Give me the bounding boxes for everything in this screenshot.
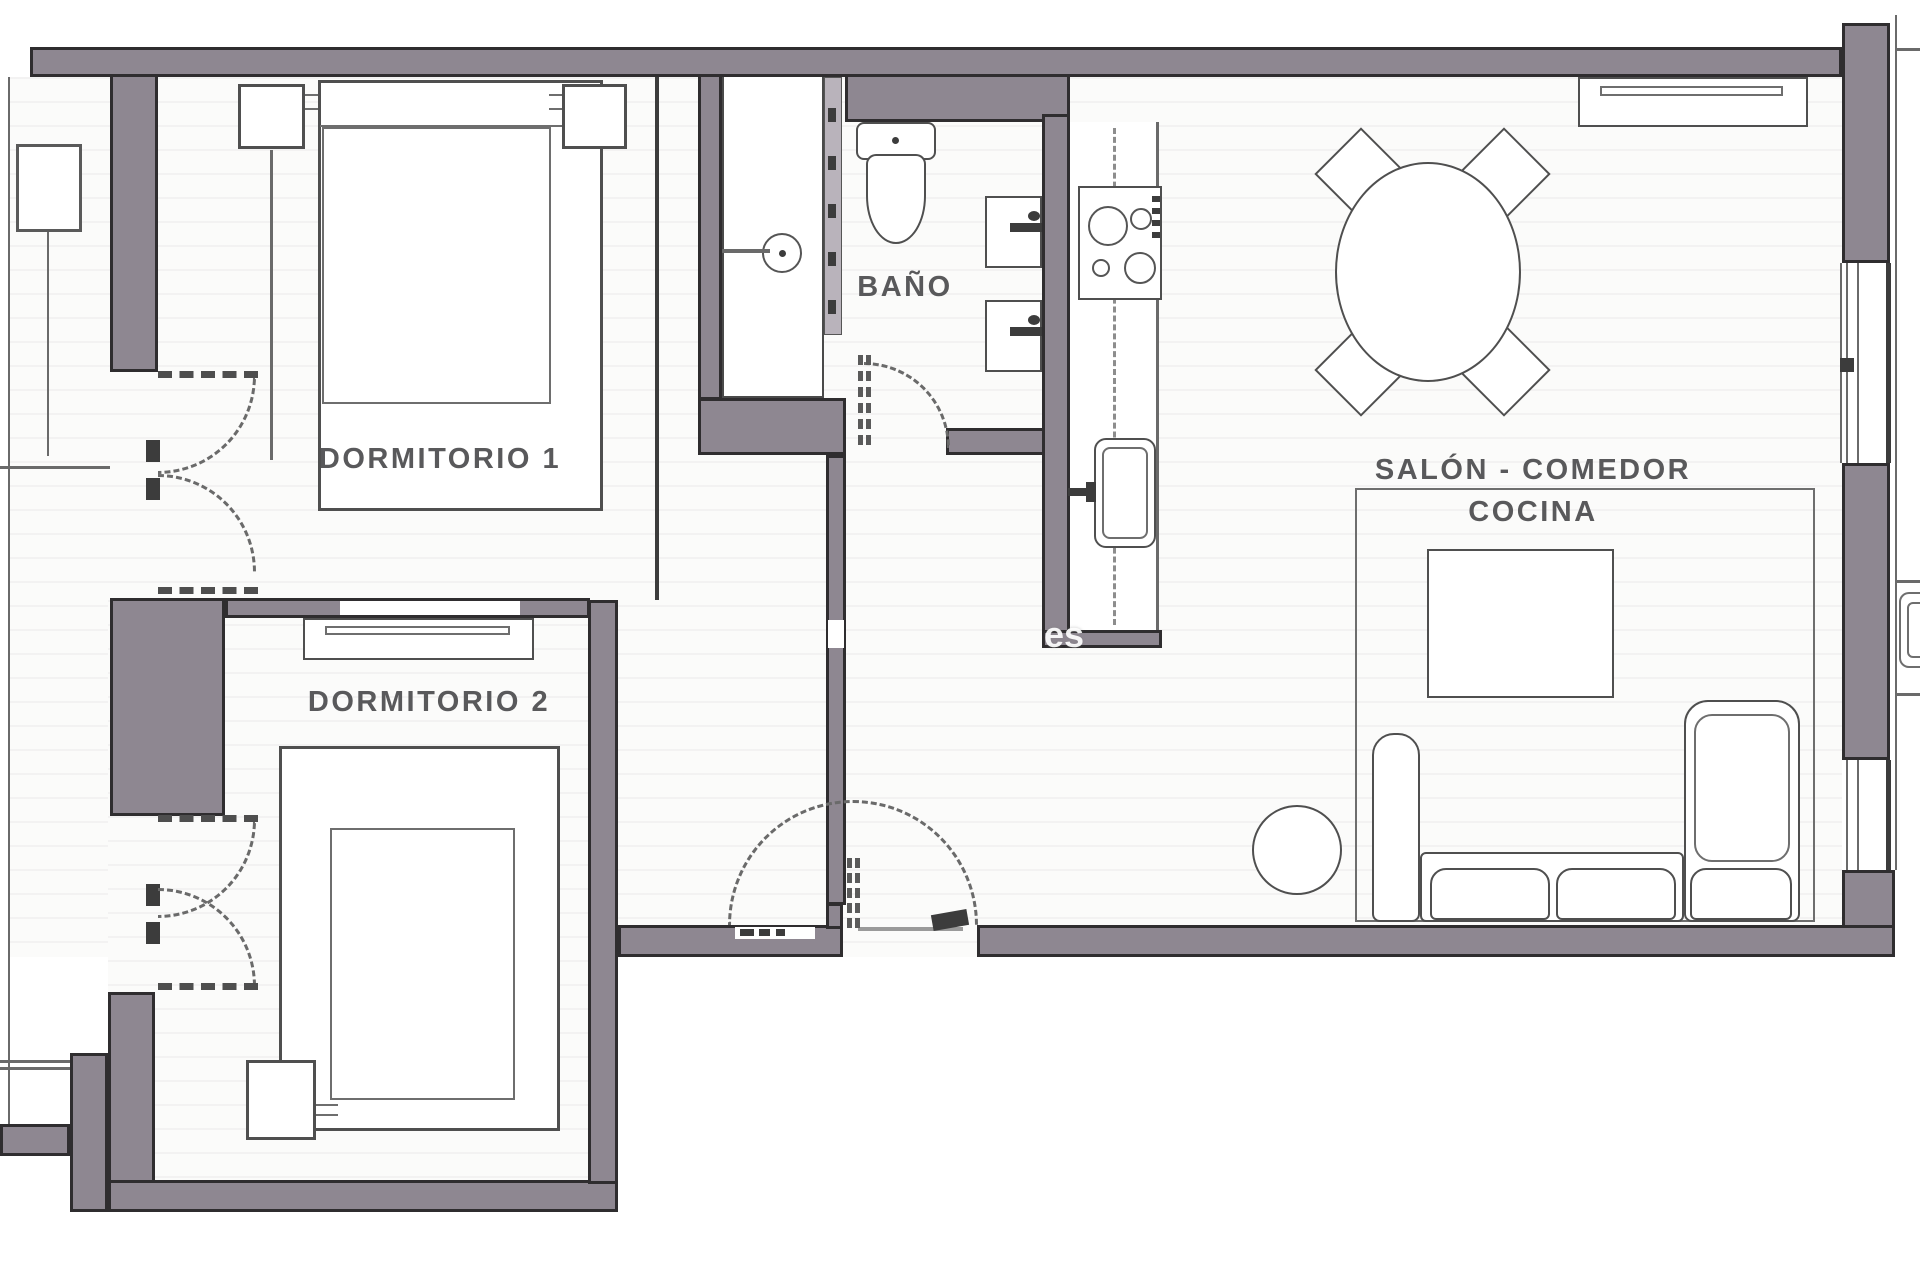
nightstand1-right-stub <box>549 94 562 110</box>
bed2-mattress <box>330 828 515 1100</box>
nightstand1-left <box>238 84 305 149</box>
adjacent-line-bottom <box>1897 693 1920 696</box>
label-bath: BAÑO <box>805 271 1005 304</box>
wall-right-upper <box>1842 23 1890 263</box>
niche-bedroom2-top <box>340 601 520 615</box>
door2-leaf-bottom <box>158 983 258 990</box>
window-1-handle <box>1840 358 1854 372</box>
kitchen-faucet-tee <box>1086 482 1096 502</box>
hob <box>1078 186 1162 300</box>
bath-faucet-1-knob <box>1028 211 1040 221</box>
window-2-line-a <box>1846 760 1848 870</box>
hob-burner-3 <box>1092 259 1110 277</box>
bath-sink-2 <box>985 300 1042 372</box>
bathdoor-leaf-a <box>858 355 863 445</box>
floorplan-canvas: DORMITORIO 1 DORMITORIO 2 BAÑO SALÓN - C… <box>0 0 1920 1280</box>
patio-appliance-line <box>47 232 49 456</box>
hob-knob-4 <box>1152 232 1160 238</box>
hob-knob-3 <box>1152 220 1160 226</box>
wall-column-upper <box>110 598 225 816</box>
entry-inset-mark-3 <box>776 929 785 936</box>
dining-table <box>1335 162 1521 382</box>
sideboard-handle <box>1600 86 1783 96</box>
patio-edge-line <box>8 77 10 1126</box>
label-living-line1: SALÓN - COMEDOR <box>1333 454 1733 487</box>
sofa-chaise-inner <box>1694 714 1790 862</box>
glass-tick-4 <box>828 252 836 266</box>
hob-burner-2 <box>1130 208 1152 230</box>
sofa-cushion-1 <box>1430 868 1550 920</box>
bath-sink-1 <box>985 196 1042 268</box>
nightstand2-stub <box>316 1104 338 1116</box>
patio-bottom-line <box>0 466 110 469</box>
hob-knob-1 <box>1152 196 1160 202</box>
wall-bath-bottom-left <box>698 398 846 455</box>
hob-burner-1 <box>1088 206 1128 246</box>
bedroom1-curtain-line <box>270 150 273 460</box>
sofa-cushion-2 <box>1556 868 1676 920</box>
dresser2-handle <box>325 626 510 635</box>
wall-bedroom1-bath <box>698 74 722 400</box>
bath-faucet-2-knob <box>1028 315 1040 325</box>
wall-column-lower <box>108 992 155 1184</box>
wall-left-strip <box>0 1124 70 1156</box>
watermark: es <box>1044 614 1084 656</box>
wall-top <box>30 47 1842 77</box>
window-2-line-b <box>1857 760 1859 870</box>
sofa-cushion-3 <box>1690 868 1792 920</box>
bedroom2-window-line-b <box>0 1067 70 1070</box>
adjacent-sink-inner <box>1907 602 1920 658</box>
bathdoor-leaf-b <box>866 355 871 445</box>
wall-block-bottomleft <box>70 1053 108 1212</box>
entry-inset-mark-1 <box>740 929 754 936</box>
sideboard <box>1578 77 1808 127</box>
entry-inset-mark-2 <box>759 929 770 936</box>
slit-hall-wall <box>828 620 844 648</box>
hob-knob-2 <box>1152 208 1160 214</box>
wall-bath-kitchen <box>1042 114 1070 648</box>
hob-burner-4 <box>1124 252 1156 284</box>
glass-tick-1 <box>828 108 836 122</box>
bed1-mattress <box>322 127 551 404</box>
shower-drain-dot <box>779 250 786 257</box>
shower-arm <box>722 249 770 253</box>
door1-leaf-top <box>158 371 258 378</box>
glass-tick-2 <box>828 156 836 170</box>
entry-leaf-a <box>847 858 852 928</box>
nightstand1-left-stub <box>305 94 318 110</box>
door2-leaf-top <box>158 815 258 822</box>
wall-T-bedroom1 <box>110 74 158 372</box>
window-2-frame <box>1886 760 1891 870</box>
entry-leaf-b <box>855 858 860 928</box>
facade-top-line <box>1895 48 1920 51</box>
bath-faucet-2 <box>1010 327 1042 336</box>
wall-bottom-salon <box>977 925 1895 957</box>
label-living-line2: COCINA <box>1383 496 1683 529</box>
bath-faucet-1 <box>1010 223 1042 232</box>
label-bedroom2: DORMITORIO 2 <box>229 686 629 719</box>
facade-outer-line <box>1895 15 1897 870</box>
kitchen-sink-inner <box>1102 447 1148 539</box>
label-bedroom1: DORMITORIO 1 <box>240 443 640 476</box>
window-1-frame <box>1886 263 1891 463</box>
wall-bedroom2-bottom <box>108 1180 618 1212</box>
wall-right-mid <box>1842 463 1890 760</box>
side-table <box>1252 805 1342 895</box>
wall-duct-over-bath <box>845 74 1070 122</box>
wall-bedroom1-right-thin <box>655 74 659 600</box>
dresser2 <box>303 618 534 660</box>
toilet-button <box>892 137 899 144</box>
nightstand1-right <box>562 84 627 149</box>
bedroom2-window-line-a <box>0 1060 70 1063</box>
coffee-table <box>1427 549 1614 698</box>
sofa-armrest-left <box>1372 733 1420 922</box>
nightstand2 <box>246 1060 316 1140</box>
door1-leaf-bottom <box>158 587 258 594</box>
window-1-line-b <box>1857 263 1859 463</box>
adjacent-line-top <box>1897 580 1920 583</box>
glass-tick-3 <box>828 204 836 218</box>
patio-appliance <box>16 144 82 232</box>
